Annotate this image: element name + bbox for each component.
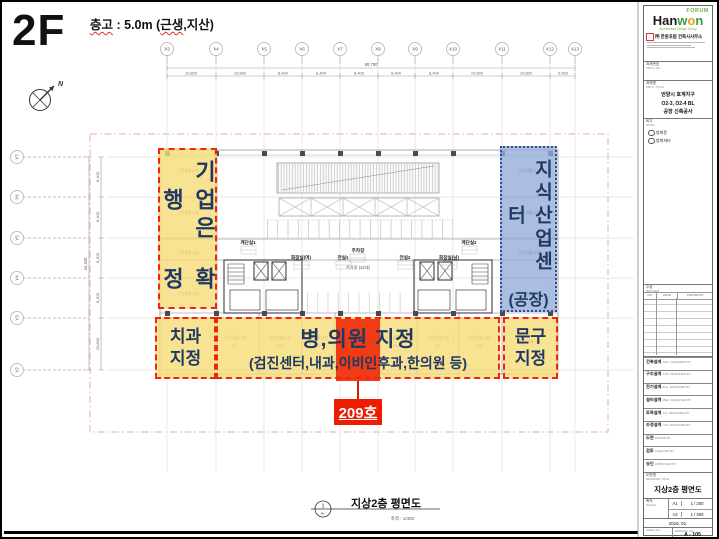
tb-number: SHEET NO DRAWING NO A - 105 — [644, 527, 712, 537]
title-block: FORUM Hanwon Architecture Design Group ㈜… — [643, 5, 713, 536]
tb-date: 2016. 01. — [644, 518, 712, 527]
grid-bubble-labels-y: Y7 Y6 Y5 Y4 Y3 Y2 — [15, 154, 20, 373]
svg-text:10,800: 10,800 — [520, 71, 533, 76]
field-checked: 검토 CHECKED BY — [644, 446, 712, 459]
svg-text:화장실(남): 화장실(남) — [439, 254, 459, 261]
company-row: ㈜ 한원포럼 건축사사무소 — [644, 31, 712, 41]
footer-title-group: 1 A- 지상2층 평면도 축척 : 1/400 — [311, 496, 440, 522]
compass-icon: N — [30, 81, 65, 111]
overlay-bank-text: 기업은행 — [156, 150, 220, 255]
rev-divider — [676, 298, 677, 355]
dim-segments-x: 10,80010,800 8,4008,400 8,4008,400 8,400… — [185, 71, 569, 76]
svg-text:주차장: 주차장 — [352, 247, 365, 254]
tb-drawing-title: 도면명DRAWING TITLE 지상2층 평면도 — [644, 472, 712, 498]
overlay-bank-text2: 확정 — [156, 255, 220, 307]
svg-text:X13: X13 — [571, 47, 580, 52]
svg-text:8,400: 8,400 — [95, 292, 100, 303]
note-items: 방화문 방화셔터 — [644, 127, 712, 145]
company-name: ㈜ 한원포럼 건축사사무소 — [655, 34, 702, 40]
field-str: 구조설계 STR. DESIGNED BY — [644, 370, 712, 383]
field-approved: 승인 APPROVED BY — [644, 459, 712, 472]
overlay-industry-text: 지식산업센터 — [502, 148, 556, 284]
svg-text:8,400: 8,400 — [95, 211, 100, 222]
field-lan: 조경설계 LAN. DESIGNED BY — [644, 421, 712, 434]
svg-text:8,400: 8,400 — [316, 71, 327, 76]
project-title-line: O2-3, O2-4 BL — [644, 100, 712, 109]
scale-a3-label: A3 — [669, 512, 682, 517]
dim-segments-y: 8,400 8,400 8,400 8,400 10,800 — [95, 171, 100, 350]
note-item: 방화셔터 — [656, 138, 671, 143]
rev-divider — [656, 298, 657, 355]
note-part: 근생 — [160, 18, 183, 32]
grid-bubbles-x — [161, 43, 582, 65]
slide: 90,700 10,80010,800 8,4008,400 8,4008,40… — [0, 0, 719, 539]
overlay-stationery: 문구 지정 — [503, 317, 558, 379]
tb-logo: FORUM Hanwon Architecture Design Group ㈜… — [644, 6, 712, 61]
svg-text:계단실1: 계단실1 — [240, 239, 256, 246]
note-item: 방화문 — [656, 130, 667, 135]
tb-scale: 축척SCALE A11 / 200 A31 / 400 — [644, 498, 712, 518]
room209-text: 209호 — [339, 402, 378, 423]
svg-text:Y5: Y5 — [15, 235, 20, 241]
svg-text:X7: X7 — [337, 47, 343, 52]
svg-text:8,400: 8,400 — [95, 252, 100, 263]
svg-text:계단실2: 계단실2 — [461, 239, 477, 246]
note-part: : 5.0m ( — [113, 18, 160, 32]
overlay-hospital-line2: (검진센터,내과,이비인후과,한의원 등) — [249, 353, 467, 373]
dim-total-x: 90,700 — [365, 62, 378, 67]
svg-text:X4: X4 — [213, 47, 219, 52]
dim-total-y: 44,400 — [83, 257, 88, 270]
scale-values: A11 / 200 A31 / 400 — [669, 499, 712, 518]
ref-sheet: A- — [321, 511, 326, 516]
drawing-title-value: 지상2층 평면도 — [644, 484, 712, 495]
overlay-stationery-line1: 문구 — [515, 326, 546, 348]
svg-text:10,800: 10,800 — [234, 71, 247, 76]
scale-a1-value: 1 / 200 — [682, 501, 712, 506]
svg-text:X9: X9 — [412, 47, 418, 52]
svg-text:Y2: Y2 — [15, 367, 20, 373]
svg-text:Y6: Y6 — [15, 194, 20, 200]
hanwon-logo: Hanwon — [644, 14, 712, 27]
revised-empty-rows — [644, 298, 712, 355]
footer-plan-scale: 축척 : 1/400 — [391, 515, 415, 522]
svg-text:전실2: 전실2 — [399, 254, 410, 261]
project-title-line: 공장 신축공사 — [644, 108, 712, 117]
svg-text:전실1: 전실1 — [337, 254, 348, 261]
drawing-no-label: DRAWING NO — [675, 529, 693, 533]
overlay-dental-line2: 지정 — [170, 348, 201, 370]
tb-fields: 건축설계 ARC. DESIGNED BY 구조설계 STR. DESIGNED… — [644, 356, 712, 472]
svg-text:8,400: 8,400 — [429, 71, 440, 76]
footer-plan-title: 지상2층 평면도 — [351, 496, 421, 510]
drawing-no-cell: DRAWING NO A - 105 — [673, 528, 712, 537]
date-value: 2016. 01. — [644, 519, 712, 526]
svg-text:X10: X10 — [449, 47, 458, 52]
room209-label: 209호 — [334, 399, 382, 425]
svg-text:X5: X5 — [261, 47, 267, 52]
overlay-industry: 지식산업센터 (공장) — [500, 146, 557, 312]
proj-title-en: PROJ. TITLE — [646, 86, 712, 89]
address-lines — [644, 42, 712, 48]
note-part: ,지산) — [183, 18, 214, 32]
note-icon — [648, 138, 655, 145]
svg-text:8,400: 8,400 — [354, 71, 365, 76]
overlay-bank: 기업은행 확정 — [158, 148, 217, 309]
svg-text:X3: X3 — [164, 47, 170, 52]
overlay-hospital-line1: 병,의원 지정 — [300, 323, 415, 353]
sheet-bottom-rule — [4, 531, 638, 534]
logo-part: n — [695, 13, 703, 28]
scale-a3-value: 1 / 400 — [682, 512, 712, 517]
room209-connector — [357, 381, 359, 400]
dimension-line-top — [167, 65, 575, 79]
svg-text:10,800: 10,800 — [185, 71, 198, 76]
overlay-hospital: 병,의원 지정 (검진센터,내과,이비인후과,한의원 등) — [216, 317, 500, 379]
stamp-icon — [646, 33, 654, 41]
svg-text:X11: X11 — [498, 47, 506, 52]
grid-bubbles-y — [11, 151, 90, 377]
field-drawn: 도면 DRAWN BY — [644, 434, 712, 447]
tb-proj-no: 과제번호PROJ. NO — [644, 61, 712, 80]
svg-text:10,800: 10,800 — [471, 71, 484, 76]
proj-no-en: PROJ. NO — [646, 67, 712, 70]
overlay-stationery-line2: 지정 — [515, 348, 546, 370]
svg-text:N: N — [58, 81, 64, 88]
parking-ramp — [277, 163, 439, 193]
core-left — [224, 260, 302, 313]
field-mec: 설비설계 MEC. DESIGNED BY — [644, 395, 712, 408]
svg-text:X12: X12 — [546, 47, 555, 52]
sheet-no-cell: SHEET NO — [644, 528, 673, 537]
project-title-text: 안양시 호계지구 O2-3, O2-4 BL 공장 신축공사 — [644, 91, 712, 117]
svg-text:Y4: Y4 — [15, 275, 20, 281]
logo-part: Han — [653, 13, 678, 28]
svg-text:10,800: 10,800 — [95, 337, 100, 350]
overlay-dental-line1: 치과 — [170, 326, 201, 348]
ref-number: 1 — [321, 504, 324, 510]
scale-a1-label: A1 — [669, 501, 682, 506]
tb-revised: 수정REVISED NO. DATE CONTENTS — [644, 284, 712, 356]
tb-proj-title: 과제명PROJ. TITLE 안양시 호계지구 O2-3, O2-4 BL 공장… — [644, 80, 712, 118]
svg-text:X8: X8 — [375, 47, 381, 52]
svg-text:화장실(여): 화장실(여) — [291, 254, 311, 261]
field-arc: 건축설계 ARC. DESIGNED BY — [644, 357, 712, 370]
svg-text:Y3: Y3 — [15, 315, 20, 321]
field-ele: 전기설계 ELE. DESIGNED BY — [644, 383, 712, 396]
logo-part: w — [677, 13, 687, 28]
tb-note: 비고NOTE 방화문 방화셔터 — [644, 118, 712, 154]
floor-label: 2F — [12, 6, 65, 56]
svg-text:5,500: 5,500 — [558, 71, 569, 76]
svg-text:8,400: 8,400 — [278, 71, 289, 76]
overlay-dental: 치과 지정 — [155, 317, 216, 379]
svg-text:8,400: 8,400 — [95, 171, 100, 182]
overlay-industry-suffix: (공장) — [508, 286, 548, 310]
svg-text:8,400: 8,400 — [391, 71, 402, 76]
note-icon — [648, 130, 655, 137]
note-part: 층고 — [90, 18, 113, 32]
project-title-line: 안양시 호계지구 — [644, 91, 712, 100]
svg-text:X6: X6 — [299, 47, 305, 52]
floor-height-note: 층고 : 5.0m (근생,지산) — [90, 14, 214, 33]
field-civ: 토목설계 CIV. DESIGNED BY — [644, 408, 712, 421]
svg-text:Y7: Y7 — [15, 154, 20, 160]
scale-label-cell: 축척SCALE — [644, 499, 669, 518]
drawing-title-en: DRAWING TITLE — [646, 478, 712, 481]
